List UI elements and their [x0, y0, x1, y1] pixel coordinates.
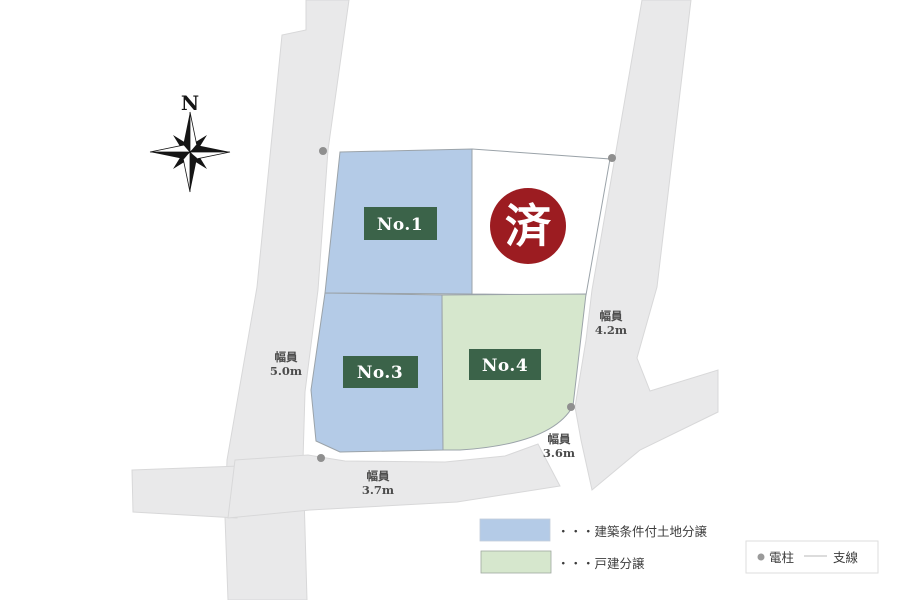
legend-lot-types: ・・・建築条件付土地分譲 ・・・戸建分譲 [480, 519, 708, 573]
road-west-arm [132, 466, 240, 518]
legend-label-blue: ・・・建築条件付土地分譲 [557, 524, 708, 539]
legend-swatch-green [481, 551, 551, 573]
width-label-value: 5.0m [270, 364, 302, 378]
legend-label-green: ・・・戸建分譲 [557, 556, 645, 571]
width-label-value: 3.7m [362, 483, 394, 497]
legend-symbols-box: 電柱 支線 [746, 541, 878, 573]
road-width-3_6m: 幅員 3.6m [543, 432, 575, 460]
sold-stamp: 済 [490, 188, 566, 264]
legend-swatch-blue [480, 519, 550, 541]
site-plan: No.1 No.3 No.4 済 幅員 5.0m 幅員 4.2m 幅員 3.7m [0, 0, 900, 600]
road-width-4_2m: 幅員 4.2m [595, 309, 627, 337]
pole-icon [317, 454, 325, 462]
legend-item-blue: ・・・建築条件付土地分譲 [480, 519, 708, 541]
sold-stamp-label: 済 [505, 199, 552, 253]
width-label-value: 4.2m [595, 323, 627, 337]
lot-no3-badge: No.3 [343, 356, 418, 388]
compass: N [150, 91, 230, 192]
lot-no3-label: No.3 [357, 363, 403, 383]
road-width-5_0m: 幅員 5.0m [270, 350, 302, 378]
compass-rose-icon [150, 112, 230, 192]
lot-no1-badge: No.1 [364, 207, 437, 240]
legend-item-green: ・・・戸建分譲 [481, 551, 645, 573]
pole-icon [608, 154, 616, 162]
road-east [575, 0, 718, 490]
legend-symbols-frame [746, 541, 878, 573]
width-label-title: 幅員 [275, 350, 298, 364]
width-label-title: 幅員 [367, 469, 390, 483]
legend-label-wire: 支線 [833, 550, 859, 565]
width-label-title: 幅員 [600, 309, 623, 323]
pole-dot-icon [758, 554, 765, 561]
legend-label-pole: 電柱 [769, 550, 794, 565]
lot-no4-label: No.4 [482, 356, 528, 376]
lot-no4-badge: No.4 [469, 349, 541, 380]
pole-icon [319, 147, 327, 155]
compass-n-label: N [181, 91, 199, 115]
site-plan-canvas: No.1 No.3 No.4 済 幅員 5.0m 幅員 4.2m 幅員 3.7m [0, 0, 900, 600]
lots [311, 149, 610, 452]
road-width-3_7m: 幅員 3.7m [362, 469, 394, 497]
lot-no1-label: No.1 [377, 215, 423, 235]
pole-icon [567, 403, 575, 411]
width-label-title: 幅員 [548, 432, 571, 446]
width-label-value: 3.6m [543, 446, 575, 460]
